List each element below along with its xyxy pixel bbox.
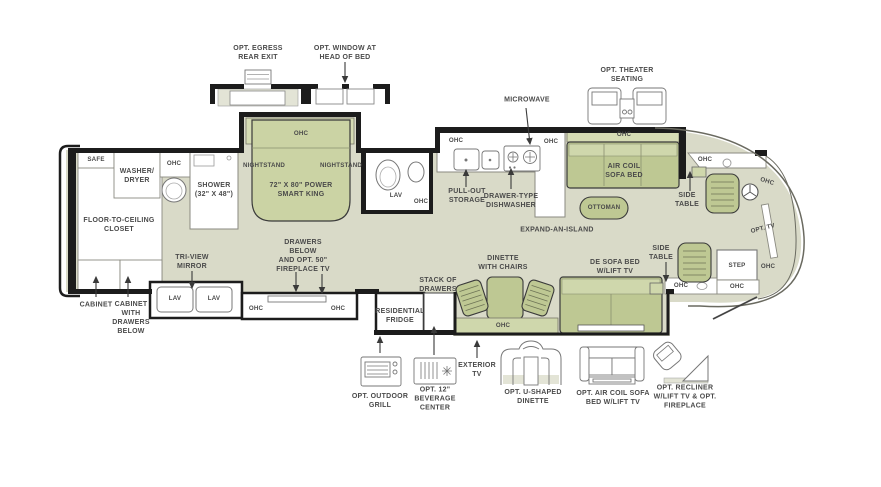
bedroom-slide-furniture [246,118,354,221]
head-window-diagram [306,84,390,104]
snowflake-icon [442,366,452,376]
steering-wheel-icon [742,184,758,200]
side-table-top [692,167,706,177]
ottoman [580,197,628,219]
recliner-fireplace-icon [651,340,708,383]
beverage-center-icon [414,358,456,384]
window-icon [347,89,374,104]
fridge-cabinets [374,293,458,335]
lift-tv-icon [578,325,644,331]
side-table-bottom [650,283,663,294]
theater-seating-icon [588,88,666,124]
fireplace-wedge-icon [683,356,708,381]
vanity-slide [150,282,242,318]
rear-closet-room [78,152,162,292]
opt-sofa-icon [580,347,644,384]
fireplace-tv-icon [268,296,326,302]
floorplan-drawing [0,0,881,487]
window-icon [316,89,343,104]
entry-step [717,250,757,280]
shower [190,152,238,229]
de-sofa-bed [560,277,662,333]
floorplan-canvas: OPT. EGRESS REAR EXIT OPT. WINDOW AT HEA… [0,0,881,487]
outdoor-grill-icon [361,357,401,386]
lav-left-icon [157,287,193,312]
rear-bath [160,152,190,202]
u-dinette-icon [501,341,561,385]
mid-bath [365,152,432,213]
driver-chair [706,174,739,213]
passenger-chair [678,243,711,282]
dinette-set [455,277,558,333]
egress-exit-diagram [210,70,306,106]
king-bed [252,120,350,221]
lav-right-icon [196,287,232,312]
dresser-fireplace [242,293,357,319]
air-coil-sofa [567,129,679,188]
egress-hatch-icon [245,70,271,84]
